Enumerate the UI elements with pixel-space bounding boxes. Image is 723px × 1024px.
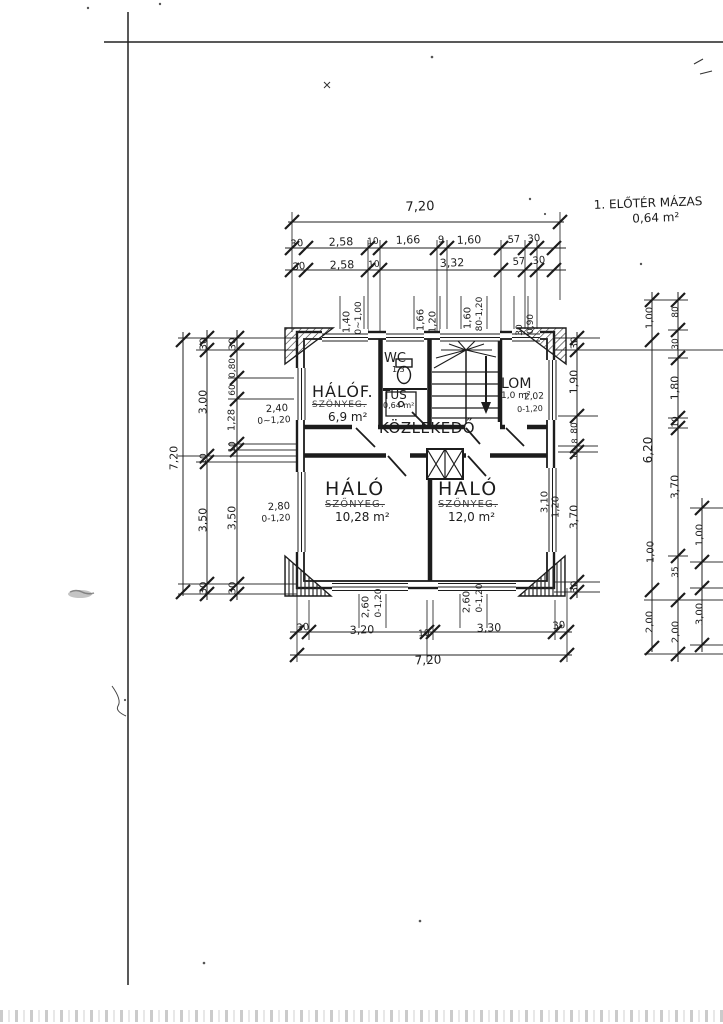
- dim-label: 10: [368, 260, 380, 271]
- dim-label: 10: [199, 453, 209, 464]
- dim-label: 30: [527, 233, 541, 245]
- dim-label: 2,02: [524, 391, 545, 402]
- dim-label: 1,28: [227, 409, 238, 431]
- room-tus-area: 0,64 m²: [383, 401, 414, 410]
- staircase: [432, 341, 498, 424]
- dim-label: 60: [228, 384, 238, 395]
- dim-label: 2,00: [645, 611, 656, 633]
- room-halo-1-area: 10,28 m²: [335, 511, 390, 525]
- dim-label: 0-1,20: [261, 513, 290, 525]
- dim-label: 0-1,20: [374, 588, 384, 617]
- page-frame-lines: [104, 12, 723, 985]
- dim-label: 3,00: [695, 603, 706, 625]
- dim-label: 30: [292, 261, 306, 273]
- room-halo-2-area: 12,0 m²: [448, 511, 498, 525]
- room-halo-2-finish: SZŐNYEG.: [438, 499, 498, 511]
- dim-label: 1,66: [416, 309, 427, 331]
- outer-walls: [297, 332, 554, 588]
- room-halo-1-finish: SZŐNYEG.: [325, 499, 390, 511]
- dim-label: 30: [671, 338, 681, 349]
- dim-label: 2,60: [462, 591, 473, 613]
- dim-label: 1,90: [568, 370, 581, 395]
- dim-label: 10: [418, 629, 430, 640]
- dim-label: 0-1,20: [517, 404, 543, 414]
- dim-label: 30: [199, 582, 210, 595]
- dim-label: 2,80: [268, 501, 291, 513]
- dim-label: 1,00: [695, 524, 706, 546]
- room-halof-finish: SZŐNYEG.: [312, 400, 374, 411]
- room-halof: HÁLÓF. SZŐNYEG. 6,9 m²: [312, 384, 374, 425]
- dim-label: 1,40: [342, 311, 353, 333]
- dim-label: 3,70: [568, 505, 581, 530]
- dim-label: 3,50: [226, 506, 239, 531]
- room-tus: TUS 0,64 m²: [383, 389, 414, 410]
- dim-label: 1,60: [457, 233, 482, 247]
- dim-label: 1,20: [551, 496, 562, 518]
- dim-label: 10: [671, 416, 681, 427]
- dim-label: 30: [552, 620, 566, 632]
- dim-label: 30: [199, 338, 210, 351]
- dim-label: 80: [570, 422, 580, 433]
- room-tus-name: TUS: [383, 389, 414, 401]
- flue-block: [427, 449, 463, 479]
- room-wc-name: WC: [384, 352, 406, 365]
- dim-label: 30: [515, 324, 525, 335]
- dim-label: 0~1,00: [354, 301, 364, 334]
- dimension-ticks: [176, 215, 709, 662]
- dim-label: 1,80: [669, 376, 682, 401]
- dim-label: 3,70: [669, 475, 682, 500]
- dim-label: 10: [367, 237, 379, 248]
- dim-bottom-overall: 7,20: [414, 653, 441, 668]
- dim-label: 57: [507, 234, 520, 246]
- room-halof-area: 6,9 m²: [328, 411, 374, 425]
- dim-label: 80: [671, 306, 681, 317]
- room-halof-name: HÁLÓF.: [312, 384, 374, 400]
- dim-label: 0-1,20: [475, 583, 485, 612]
- dim-label: 30: [290, 238, 304, 250]
- dim-label: 0,90: [526, 314, 536, 334]
- room-wc-area: 1,3: [392, 365, 406, 374]
- dim-label: 57: [512, 256, 525, 268]
- dim-label: 30: [532, 255, 546, 267]
- dim-label: 30: [296, 622, 310, 634]
- dim-label: 10: [571, 449, 580, 459]
- dim-label: 2,60: [361, 596, 372, 618]
- room-lom-name: LOM: [501, 377, 531, 391]
- note-room-schedule: 1. ELŐTÉR MÁZAS 0,64 m²: [594, 194, 704, 228]
- dim-label: 30: [570, 337, 581, 350]
- dim-left-overall: 7,20: [168, 446, 181, 471]
- dim-label: 6,20: [641, 437, 655, 464]
- room-halo-1: HÁLÓ SZŐNYEG. 10,28 m²: [325, 480, 390, 525]
- dim-label: 1,66: [396, 233, 421, 247]
- scan-noise-strip: [0, 1010, 723, 1022]
- dim-label: 2,00: [671, 621, 682, 643]
- room-halo-2: HÁLÓ SZŐNYEG. 12,0 m²: [438, 480, 498, 525]
- dim-label: 3,30: [477, 621, 502, 635]
- dim-top-overall: 7,20: [405, 199, 434, 215]
- dim-label: 2,58: [329, 235, 354, 249]
- dim-label: 3,50: [197, 508, 210, 533]
- dim-label: 0,80: [228, 358, 238, 378]
- dim-label: 30: [228, 338, 239, 351]
- room-halo-2-name: HÁLÓ: [438, 480, 498, 499]
- dim-label: 80-1,20: [475, 297, 485, 332]
- dim-label: 1,00: [646, 541, 657, 563]
- dim-label: 1,20: [428, 311, 439, 333]
- dim-label: 9: [438, 235, 444, 246]
- dim-label: 30: [570, 581, 581, 594]
- dim-label: 1,60: [463, 307, 474, 329]
- paper-blemishes: [68, 3, 712, 965]
- dimension-lines: [183, 222, 702, 662]
- dim-label: 10: [228, 441, 238, 452]
- room-kozlekedo: KÖZLEKEDŐ: [379, 421, 475, 436]
- room-kozlekedo-name: KÖZLEKEDŐ: [379, 421, 475, 436]
- dim-label: 0~1,20: [257, 415, 291, 427]
- room-halo-1-name: HÁLÓ: [325, 480, 390, 499]
- room-wc: WC 1,3: [384, 352, 406, 374]
- dim-label: 2,58: [330, 258, 355, 272]
- note-line2: 0,64 m²: [632, 209, 703, 226]
- dim-label: 35: [671, 566, 681, 577]
- dim-label: 30: [228, 582, 239, 595]
- drawing-sheet: 1. ELŐTÉR MÁZAS 0,64 m² HÁLÓF. SZŐNYEG. …: [0, 0, 723, 1024]
- dim-label: 3,32: [440, 256, 465, 270]
- dim-label: 3,00: [197, 390, 210, 415]
- dim-label: 8: [571, 438, 580, 443]
- dim-label: 2,40: [266, 403, 289, 415]
- dim-label: 1,00: [645, 307, 656, 329]
- corner-hatching: [285, 328, 566, 596]
- dim-label: 3,20: [350, 623, 375, 637]
- dim-label: 3,10: [540, 491, 551, 513]
